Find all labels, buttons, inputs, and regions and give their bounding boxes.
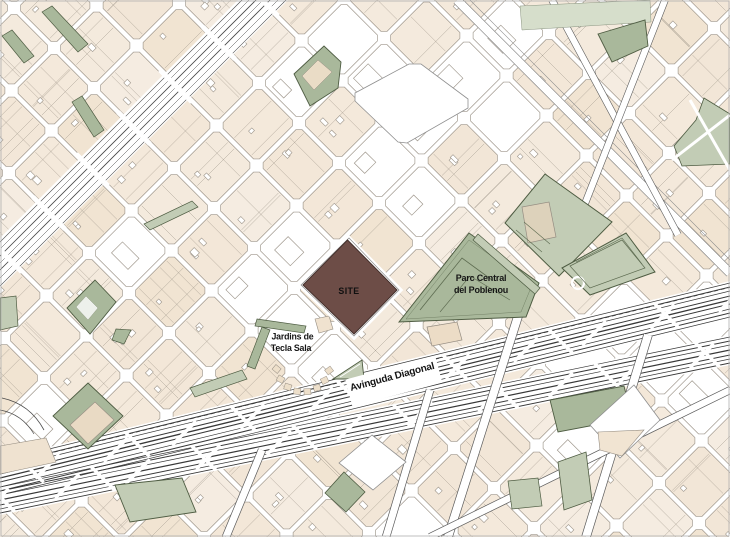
svg-text:del Poblenou: del Poblenou [454, 285, 508, 295]
svg-text:SITE: SITE [338, 286, 359, 296]
svg-text:Tecla Sala: Tecla Sala [271, 343, 312, 353]
svg-text:Parc Central: Parc Central [456, 273, 507, 283]
svg-text:Jardins de: Jardins de [271, 332, 313, 342]
